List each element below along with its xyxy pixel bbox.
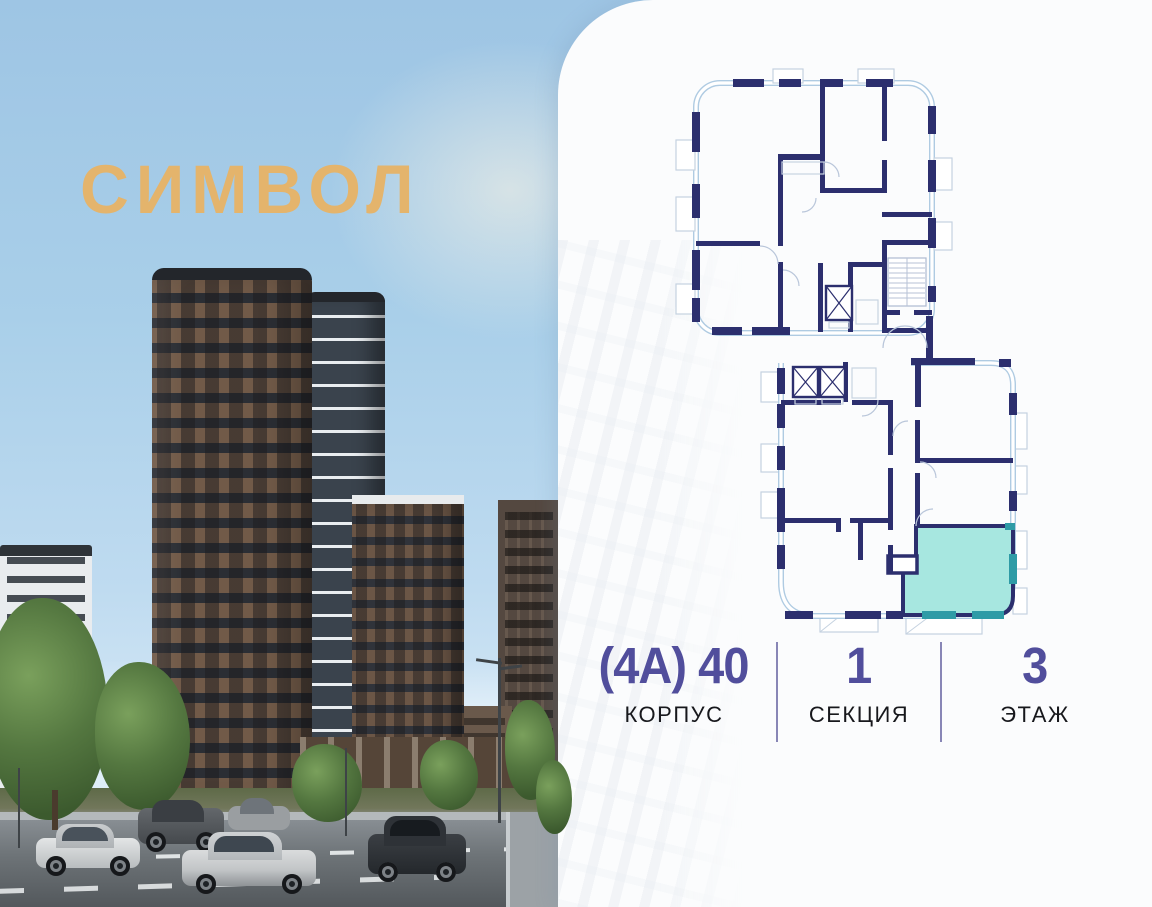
info-section: 1 СЕКЦИЯ [778,638,940,728]
apartment-card: СИМВОЛ [0,0,1152,907]
info-building: (4А) 40 КОРПУС [572,638,776,728]
unit-info-bar: (4А) 40 КОРПУС 1 СЕКЦИЯ 3 ЭТАЖ [572,638,1132,742]
building-value: (4А) 40 [599,638,749,694]
highlighted-unit-room[interactable] [903,523,1017,619]
driving-car-silver [182,832,316,892]
floor-plan [655,55,1152,640]
section-value: 1 [846,638,871,694]
floor-label: ЭТАЖ [1000,702,1070,728]
street-light [18,768,20,848]
street-light [498,658,501,823]
street-light [345,748,347,836]
tree [292,744,362,822]
parked-car-white [36,824,140,874]
tree [420,740,478,810]
driving-car-dark [368,816,466,880]
tree [536,760,572,834]
section-label: СЕКЦИЯ [809,702,909,728]
info-floor: 3 ЭТАЖ [942,638,1128,728]
floor-value: 3 [1022,638,1047,694]
building-label: КОРПУС [624,702,723,728]
project-logo: СИМВОЛ [80,150,452,229]
parked-car-gray [228,798,290,836]
